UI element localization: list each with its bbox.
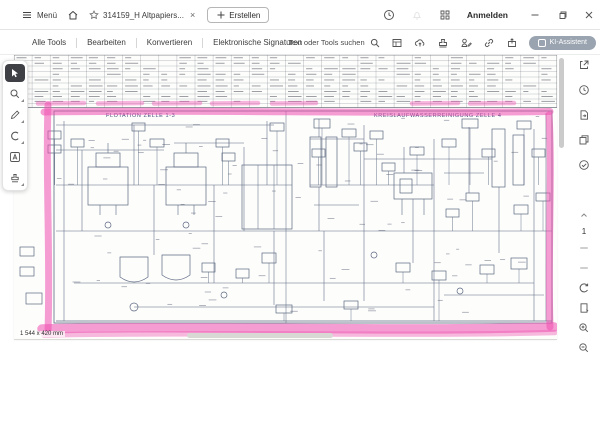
signin-button[interactable]: Anmelden xyxy=(467,10,508,20)
text-box-icon xyxy=(9,151,21,163)
check-circle-icon xyxy=(578,159,590,171)
export-pdf-button[interactable] xyxy=(575,57,593,73)
organize-pages-icon[interactable] xyxy=(391,37,403,49)
create-button[interactable]: Erstellen xyxy=(207,7,269,23)
tab-title: 314159_H Altpapiers... xyxy=(103,11,184,20)
zoom-in-icon xyxy=(578,322,590,334)
zoom-out-icon xyxy=(578,342,590,354)
minimize-icon[interactable] xyxy=(530,10,540,20)
menu-label: Menü xyxy=(37,11,57,20)
zoom-out-button[interactable] xyxy=(575,340,593,356)
copy-icon xyxy=(578,134,590,146)
pink-highlight-annotation xyxy=(38,103,555,335)
submenu-indicator xyxy=(21,141,24,144)
ai-assistant-icon xyxy=(538,39,546,47)
copy-pages-button[interactable] xyxy=(575,132,593,148)
link-icon[interactable] xyxy=(483,37,495,49)
tab-konvertieren[interactable]: Konvertieren xyxy=(137,38,202,47)
history-button[interactable] xyxy=(575,82,593,98)
page-size-label: 1 544 x 420 mm xyxy=(18,331,65,337)
history-clock-icon[interactable] xyxy=(383,9,395,21)
menu-button[interactable]: Menü xyxy=(22,10,57,20)
tab-alle-tools[interactable]: Alle Tools xyxy=(22,38,76,47)
chevron-up-icon xyxy=(579,210,589,220)
search-icon xyxy=(370,38,380,48)
zoom-in-button[interactable] xyxy=(575,320,593,336)
share-export-icon[interactable] xyxy=(506,37,518,49)
page-down-button[interactable] xyxy=(575,240,593,256)
page-view-button[interactable] xyxy=(575,300,593,316)
fit-width-button[interactable] xyxy=(575,260,593,276)
select-cursor-icon xyxy=(9,67,21,79)
document-tab[interactable]: 314159_H Altpapiers... × xyxy=(89,10,197,20)
close-icon[interactable] xyxy=(584,10,594,20)
draw-tool-button[interactable] xyxy=(5,106,25,124)
schematic-drawing: FLOTATION ZELLE 1-3 KREISLAUFWASSERREINI… xyxy=(14,55,557,340)
fill-sign-icon[interactable] xyxy=(460,37,472,49)
convert-page-button[interactable] xyxy=(575,107,593,123)
eraser-tool-button[interactable] xyxy=(5,127,25,145)
submenu-indicator xyxy=(21,183,24,186)
loupe-icon xyxy=(9,88,21,100)
page-edit-icon xyxy=(578,302,590,314)
cloud-upload-icon[interactable] xyxy=(414,37,426,49)
vertical-scrollbar[interactable] xyxy=(559,58,564,148)
export-icon xyxy=(578,59,590,71)
stamp-tool-button[interactable] xyxy=(5,169,25,187)
clock-icon xyxy=(578,84,590,96)
chevron-down-icon xyxy=(580,247,588,249)
select-tool-button[interactable] xyxy=(5,64,25,82)
page-number: 1 xyxy=(582,227,586,236)
right-tools-rail: 1 xyxy=(566,55,600,424)
submenu-indicator xyxy=(21,99,24,102)
tab-bearbeiten[interactable]: Bearbeiten xyxy=(77,38,136,47)
pdf-page[interactable]: FLOTATION ZELLE 1-3 KREISLAUFWASSERREINI… xyxy=(14,55,557,340)
ai-assistant-label: KI-Assistent xyxy=(550,39,587,46)
home-icon[interactable] xyxy=(67,9,79,21)
notifications-bell-icon[interactable] xyxy=(411,9,423,21)
ai-assistant-button[interactable]: KI-Assistent xyxy=(529,36,596,50)
page-up-button[interactable] xyxy=(575,207,593,223)
plus-icon xyxy=(216,10,226,20)
stamp-icon[interactable] xyxy=(437,37,449,49)
quick-tools-panel xyxy=(2,60,28,191)
approve-button[interactable] xyxy=(575,157,593,173)
tools-toolbar: Alle Tools Bearbeiten Konvertieren Elekt… xyxy=(0,30,600,55)
hamburger-icon xyxy=(22,10,32,20)
apps-grid-icon[interactable] xyxy=(439,9,451,21)
page-arrow-icon xyxy=(578,109,590,121)
create-button-label: Erstellen xyxy=(229,11,260,20)
document-viewer: FLOTATION ZELLE 1-3 KREISLAUFWASSERREINI… xyxy=(0,55,600,424)
horizontal-scrollbar[interactable] xyxy=(187,333,333,338)
rotate-page-button[interactable] xyxy=(575,280,593,296)
submenu-indicator xyxy=(21,120,24,123)
search-placeholder: Text oder Tools suchen xyxy=(288,38,365,47)
app-titlebar: Menü 314159_H Altpapiers... × Erstellen … xyxy=(0,0,600,30)
fit-width-icon xyxy=(580,267,588,269)
star-icon[interactable] xyxy=(89,10,99,20)
add-text-tool-button[interactable] xyxy=(5,148,25,166)
zoom-tool-button[interactable] xyxy=(5,85,25,103)
eraser-arc-icon xyxy=(9,130,21,142)
stamp-small-icon xyxy=(9,172,21,184)
search-input[interactable]: Text oder Tools suchen xyxy=(288,38,380,48)
restore-icon[interactable] xyxy=(557,10,567,20)
rotate-icon xyxy=(578,282,590,294)
pen-icon xyxy=(9,109,21,121)
tab-close-icon[interactable]: × xyxy=(188,10,197,20)
